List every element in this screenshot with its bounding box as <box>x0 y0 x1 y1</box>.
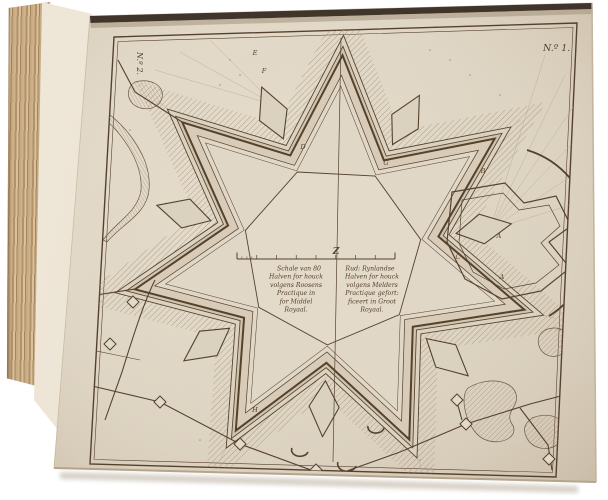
plan-label-g: G <box>383 159 388 167</box>
plan-label-e: E <box>252 49 258 57</box>
plan-label-f: F <box>261 67 267 75</box>
plan-label-a1: A <box>496 232 502 240</box>
caption-left-line: volgens Roosens <box>270 282 322 289</box>
plan-label-h: H <box>251 406 258 414</box>
plan-label-a2: A <box>499 273 505 281</box>
plate-number: N.º 1. <box>542 43 570 54</box>
caption-right-line: Royaal. <box>359 307 383 314</box>
caption-right-line: Halven for houck <box>344 274 399 281</box>
caption-left-line: for Middel <box>279 298 313 305</box>
caption-right-line: Practique gefort: <box>344 290 398 297</box>
caption-right-line: volgens Melders <box>346 282 398 289</box>
caption-right-line: ficeert in Groot <box>347 298 397 305</box>
foldout-plate: Z Schale van 80 Halven for houck volgens… <box>0 0 608 500</box>
plan-label-d: D <box>299 143 306 151</box>
caption-left-line: Halven for houck <box>268 274 323 281</box>
caption-left-line: Practique in <box>276 290 315 297</box>
caption-right-line: Rud: Rynlandse <box>344 266 394 273</box>
photo-of-open-book: Z Schale van 80 Halven for houck volgens… <box>0 0 608 500</box>
caption-left-line: Schale van 80 <box>277 266 321 273</box>
plan-label-b: B <box>480 167 486 175</box>
underlying-plate-number: N.º 2. <box>135 51 144 75</box>
caption-left-line: Royaal. <box>283 307 307 314</box>
meridian-mark: Z <box>332 247 340 257</box>
plan-label-c: C <box>456 253 461 261</box>
